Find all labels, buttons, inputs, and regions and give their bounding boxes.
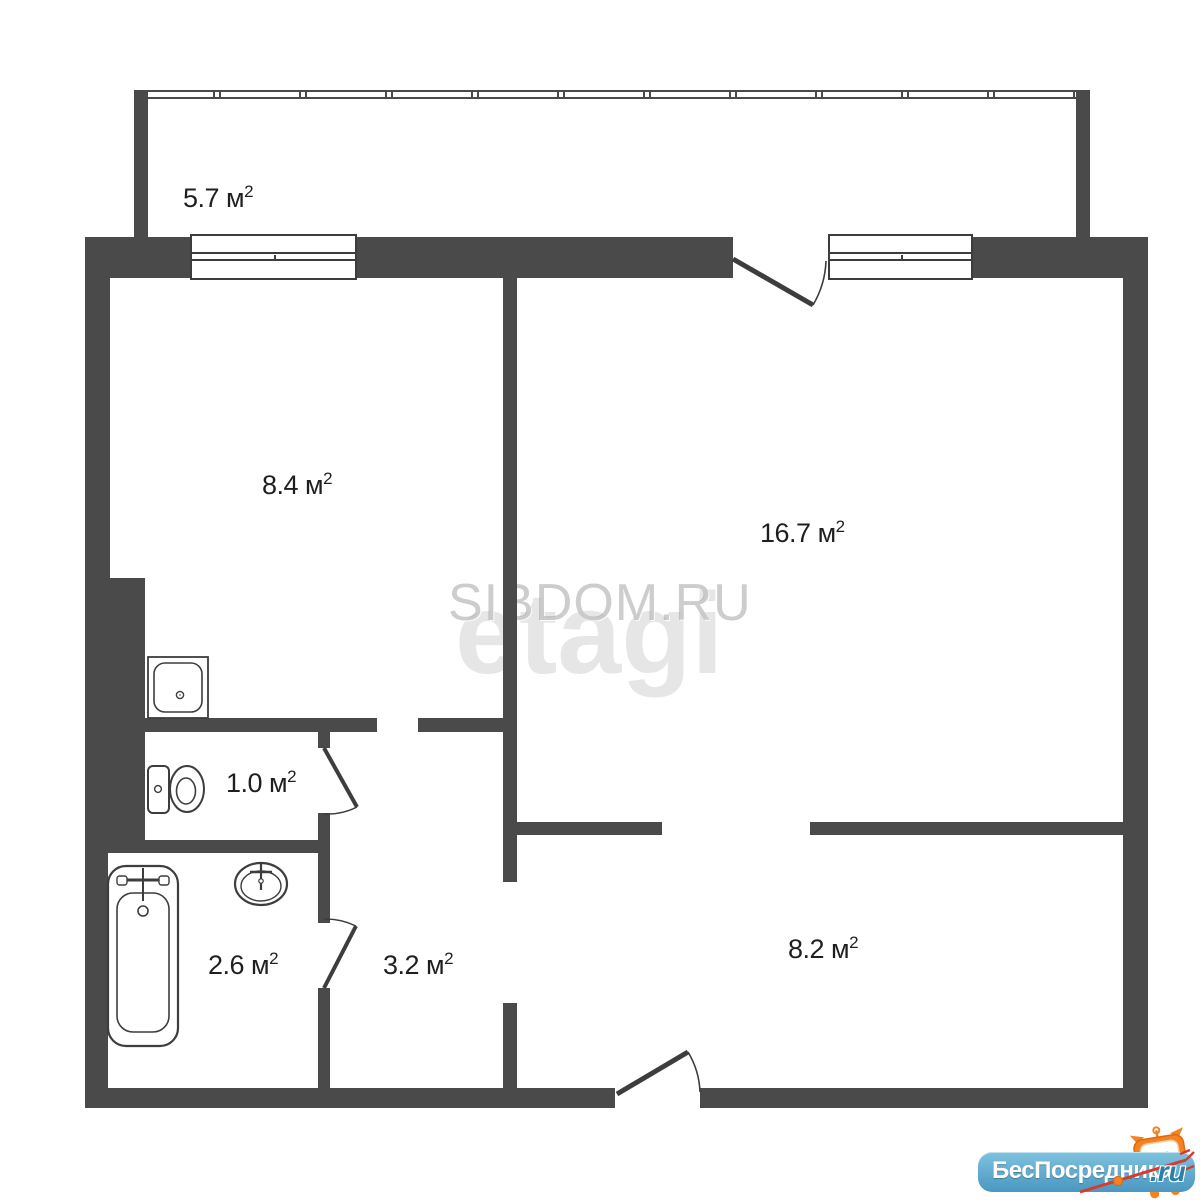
wall-top-middle <box>357 237 733 278</box>
toilet-icon <box>148 766 204 813</box>
washbasin-icon <box>235 863 287 905</box>
wall-right-outer <box>1123 237 1148 1108</box>
wall-top-right <box>973 237 1148 278</box>
window-living <box>828 234 973 280</box>
balcony-right-wall <box>1076 90 1090 240</box>
site-logo-brand: БесПосредника <box>992 1157 1172 1185</box>
wall-room-divider-left <box>517 822 662 835</box>
wall-room-divider-right <box>810 822 1123 835</box>
wall-kitchen-divider-left <box>85 718 377 732</box>
balcony-door <box>733 259 826 305</box>
wall-left-outer-upper <box>85 237 110 578</box>
room-label-bathroom: 2.6 м2 <box>208 950 278 981</box>
wall-toilet-right-top <box>318 732 330 748</box>
room-label-living: 16.7 м2 <box>760 518 845 549</box>
wall-bottom-right <box>700 1088 1148 1108</box>
watermark-sibdom: SIBDOM.RU <box>448 573 752 633</box>
wall-left-outer-lower <box>85 853 108 1108</box>
balcony-railing <box>137 90 1090 99</box>
wall-bottom-left <box>85 1088 615 1108</box>
room-label-hallway: 3.2 м2 <box>383 950 453 981</box>
room-label-toilet: 1.0 м2 <box>226 768 296 799</box>
wall-bath-right-bottom <box>318 988 330 1088</box>
floor-plan: etagi SIBDOM.RU <box>0 0 1200 1200</box>
toilet-door <box>324 748 357 814</box>
bathtub-icon <box>108 866 178 1046</box>
kitchen-sink-icon <box>148 657 208 718</box>
balcony-left-wall <box>134 90 148 237</box>
room-label-balcony: 5.7 м2 <box>183 183 253 214</box>
window-kitchen <box>190 234 357 280</box>
room-label-entry: 8.2 м2 <box>788 934 858 965</box>
wall-toilet-right-bottom <box>318 813 330 840</box>
wall-toilet-bath-divider <box>85 840 330 853</box>
room-label-kitchen: 8.4 м2 <box>262 470 332 501</box>
wall-kitchen-divider-right <box>418 718 517 732</box>
window-sash <box>191 252 356 261</box>
window-sash <box>829 252 972 261</box>
wall-bath-right-top <box>318 853 330 923</box>
wall-central-upper <box>503 278 517 882</box>
entrance-door <box>617 1052 700 1094</box>
wall-central-stub <box>503 1003 517 1088</box>
bathroom-door <box>324 919 356 988</box>
wall-left-outer-mid <box>85 578 145 853</box>
site-logo-tld: .ru <box>1150 1156 1186 1188</box>
